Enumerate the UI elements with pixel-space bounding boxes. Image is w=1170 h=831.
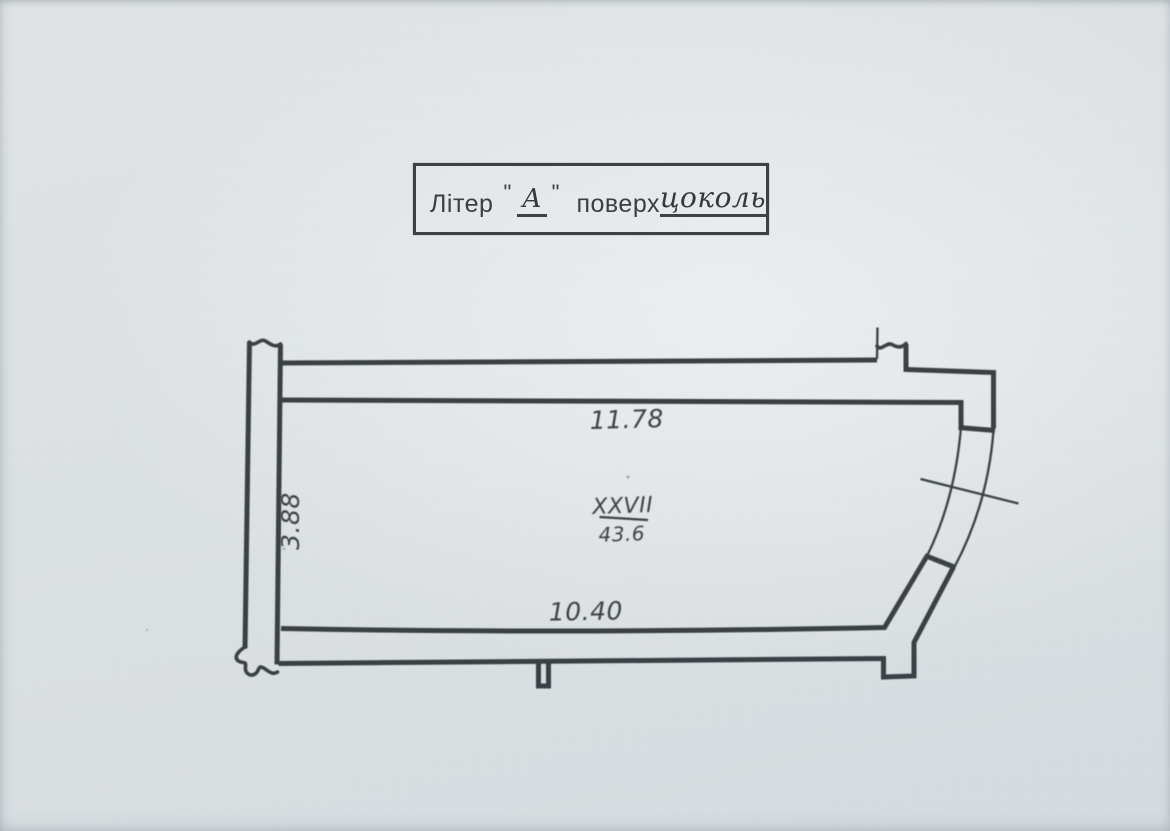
wall-left-outer <box>245 342 250 649</box>
wall-break-stub <box>877 328 878 360</box>
window-tick-line <box>921 479 1019 504</box>
dimension-left: 3.88 <box>276 492 305 550</box>
window-arc-outer <box>955 430 994 567</box>
speck <box>146 629 148 631</box>
room-area: 43.6 <box>598 521 645 547</box>
scanned-floor-plan-page: Літер " А " поверх цоколь <box>0 0 1170 831</box>
break-wave-top-right <box>877 344 906 348</box>
break-wave-top-left <box>250 340 281 345</box>
window-jamb-bottom <box>925 556 956 568</box>
speck <box>626 475 629 478</box>
room-number: XXVII <box>591 493 654 520</box>
wall-top-right-outer <box>906 344 994 429</box>
plan-labels: 11.78 3.88 XXVII 43.6 10.40 <box>276 404 664 627</box>
speck <box>283 548 286 551</box>
break-wave-bottom-left <box>236 647 277 675</box>
window-jamb-top <box>959 428 996 431</box>
dimension-bottom: 10.40 <box>549 596 624 626</box>
wall-top-outer <box>280 360 877 363</box>
window-arc-inner <box>928 427 962 555</box>
floor-plan-drawing: 11.78 3.88 XXVII 43.6 10.40 <box>0 0 1170 831</box>
wall-bottom-tab <box>539 661 549 687</box>
dimension-top: 11.78 <box>589 404 664 435</box>
